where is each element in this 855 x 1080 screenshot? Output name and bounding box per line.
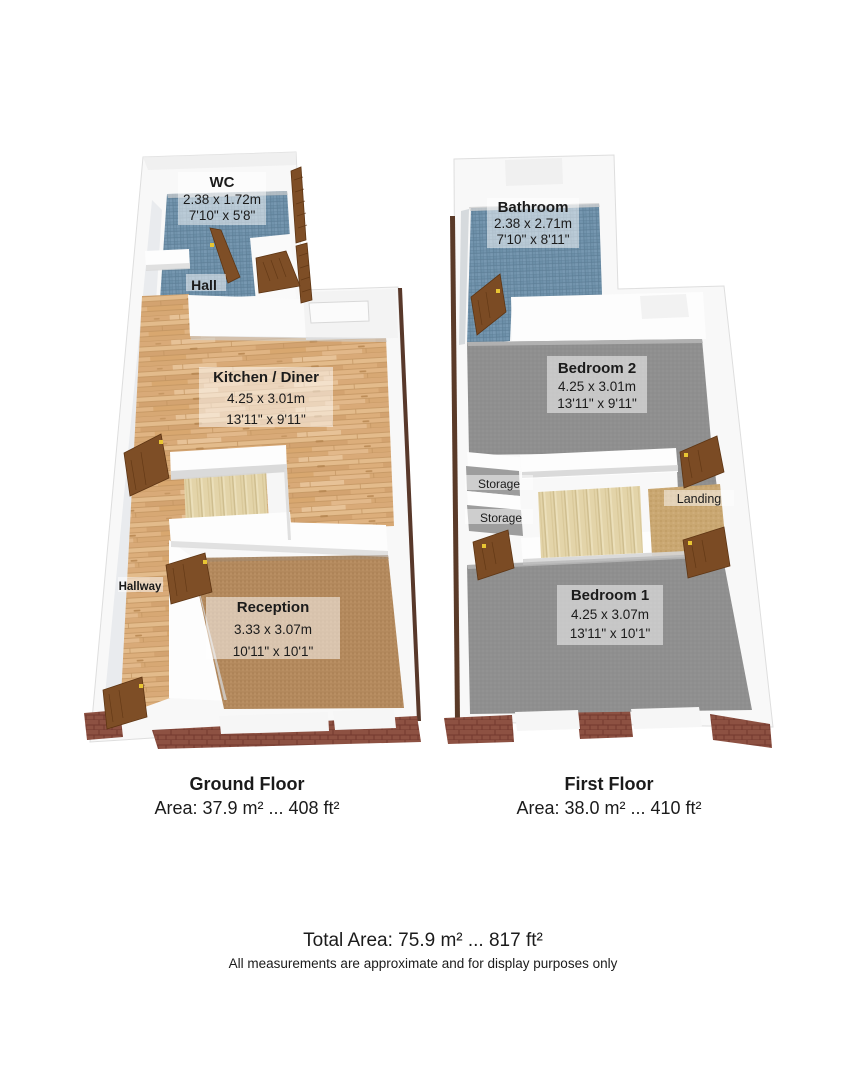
svg-text:7'10" x 5'8": 7'10" x 5'8" (189, 208, 256, 223)
svg-text:WC: WC (210, 174, 235, 191)
svg-text:2.38 x 1.72m: 2.38 x 1.72m (183, 192, 261, 207)
svg-text:Bedroom 1: Bedroom 1 (571, 587, 649, 604)
svg-text:Bedroom 2: Bedroom 2 (558, 360, 636, 377)
svg-text:Bathroom: Bathroom (498, 199, 569, 216)
svg-text:Storage: Storage (480, 511, 522, 525)
svg-text:Area: 38.0 m² ... 410 ft²: Area: 38.0 m² ... 410 ft² (516, 798, 701, 818)
svg-text:4.25 x 3.01m: 4.25 x 3.01m (558, 379, 636, 394)
svg-text:Landing: Landing (677, 492, 722, 506)
svg-text:4.25 x 3.07m: 4.25 x 3.07m (571, 607, 649, 622)
svg-text:Area: 37.9 m² ... 408 ft²: Area: 37.9 m² ... 408 ft² (154, 798, 339, 818)
svg-text:All measurements are approxima: All measurements are approximate and for… (229, 956, 618, 971)
svg-text:13'11" x 9'11": 13'11" x 9'11" (557, 396, 637, 411)
svg-text:First Floor: First Floor (565, 774, 654, 794)
svg-text:Ground Floor: Ground Floor (190, 774, 305, 794)
svg-text:Kitchen / Diner: Kitchen / Diner (213, 369, 319, 386)
svg-text:13'11" x 10'1": 13'11" x 10'1" (570, 626, 651, 641)
svg-text:Storage: Storage (478, 477, 520, 491)
svg-text:3.33 x 3.07m: 3.33 x 3.07m (234, 622, 312, 637)
svg-text:10'11" x 10'1": 10'11" x 10'1" (233, 644, 314, 659)
svg-text:Hallway: Hallway (119, 581, 162, 593)
svg-text:Total Area: 75.9 m² ... 817 ft: Total Area: 75.9 m² ... 817 ft² (303, 930, 543, 951)
svg-text:2.38 x 2.71m: 2.38 x 2.71m (494, 216, 572, 231)
svg-text:7'10" x 8'11": 7'10" x 8'11" (496, 232, 569, 247)
svg-text:4.25 x 3.01m: 4.25 x 3.01m (227, 391, 305, 406)
svg-text:Hall: Hall (191, 277, 217, 293)
svg-text:13'11" x 9'11": 13'11" x 9'11" (226, 412, 306, 427)
svg-text:Reception: Reception (237, 599, 310, 616)
